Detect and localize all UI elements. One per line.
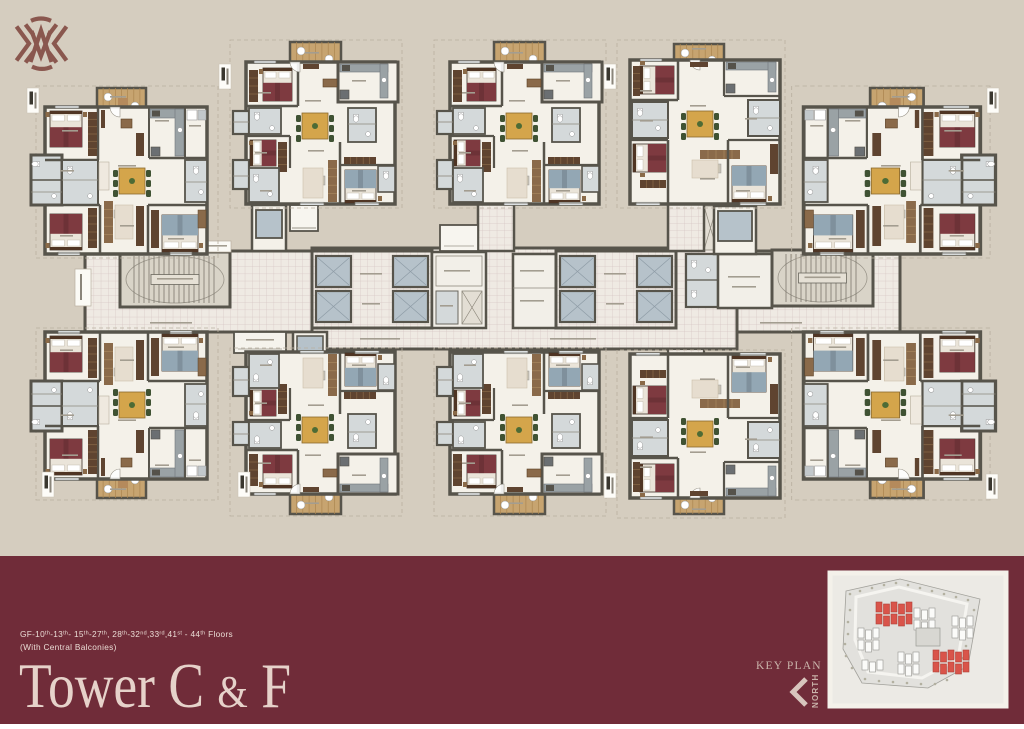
svg-text:KEY PLAN: KEY PLAN: [756, 660, 822, 672]
svg-text:NORTH: NORTH: [811, 674, 820, 708]
svg-text:Tower C & F: Tower C & F: [19, 651, 291, 721]
